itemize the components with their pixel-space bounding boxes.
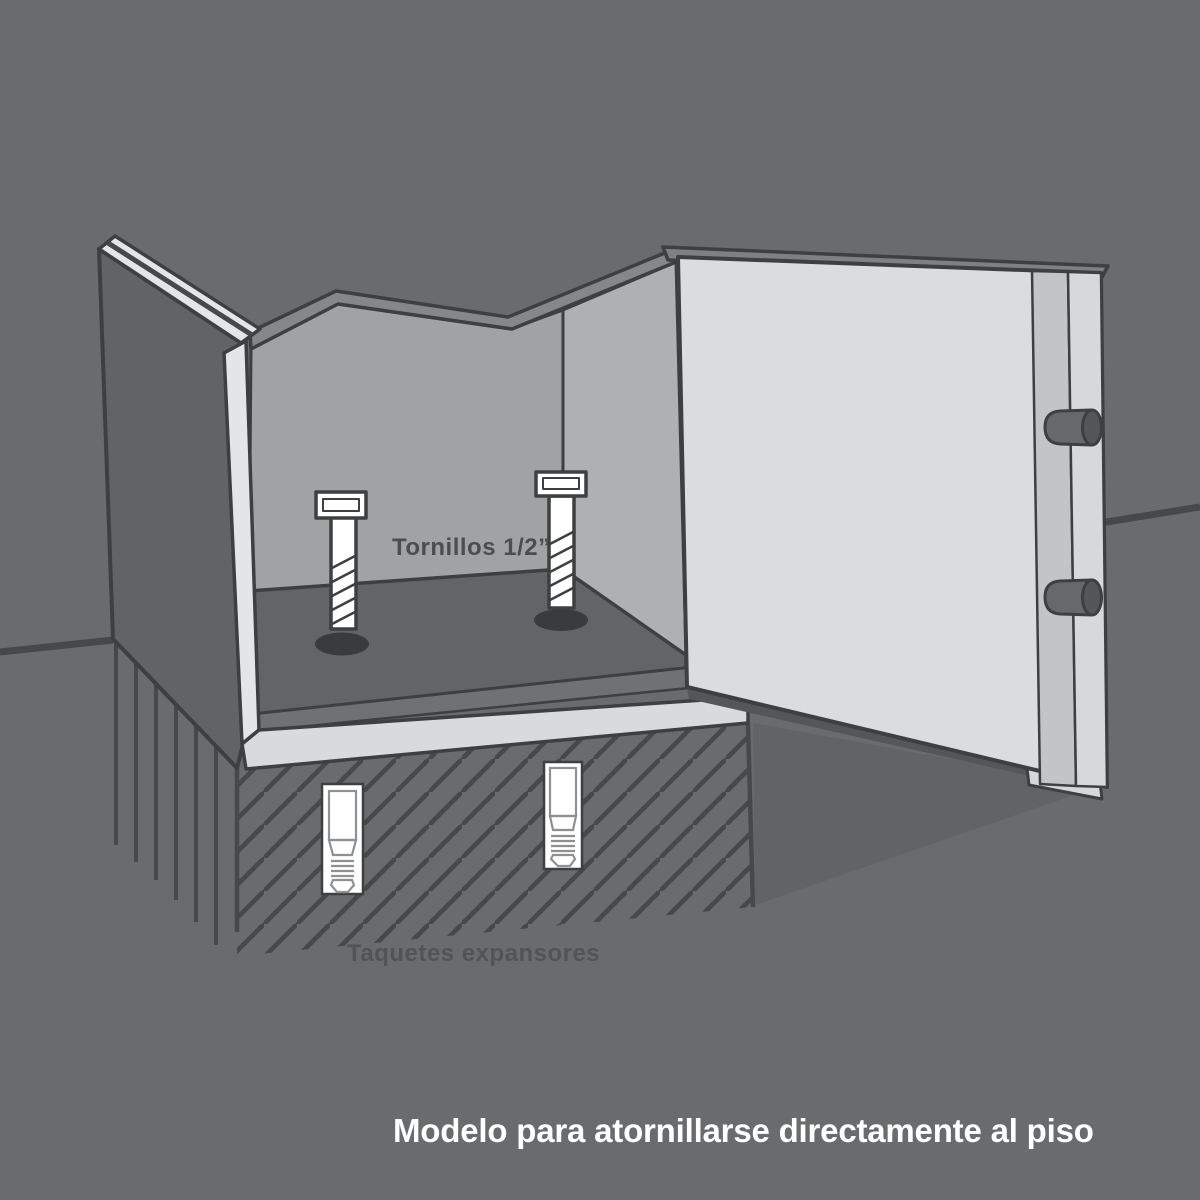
door-edge-strip-outer [1068,272,1107,787]
caption-text: Modelo para atornillarse directamente al… [393,1112,1094,1150]
locking-bolt-top-cap [1083,410,1102,445]
bolt-hole-right [534,609,588,631]
safe-illustration [0,0,1200,1200]
screws-label: Tornillos 1/2” [392,534,551,562]
safe-interior [249,250,689,731]
locking-bolt-bottom-cap [1083,580,1102,615]
expansion-anchor-left [322,784,363,894]
bolt-hole-left [315,633,369,656]
anchors-label: Taquetes expansores [347,940,600,968]
expansion-anchor-right [544,762,582,869]
safe-diagram: Tornillos 1/2” Taquetes expansores Model… [0,0,1200,1200]
